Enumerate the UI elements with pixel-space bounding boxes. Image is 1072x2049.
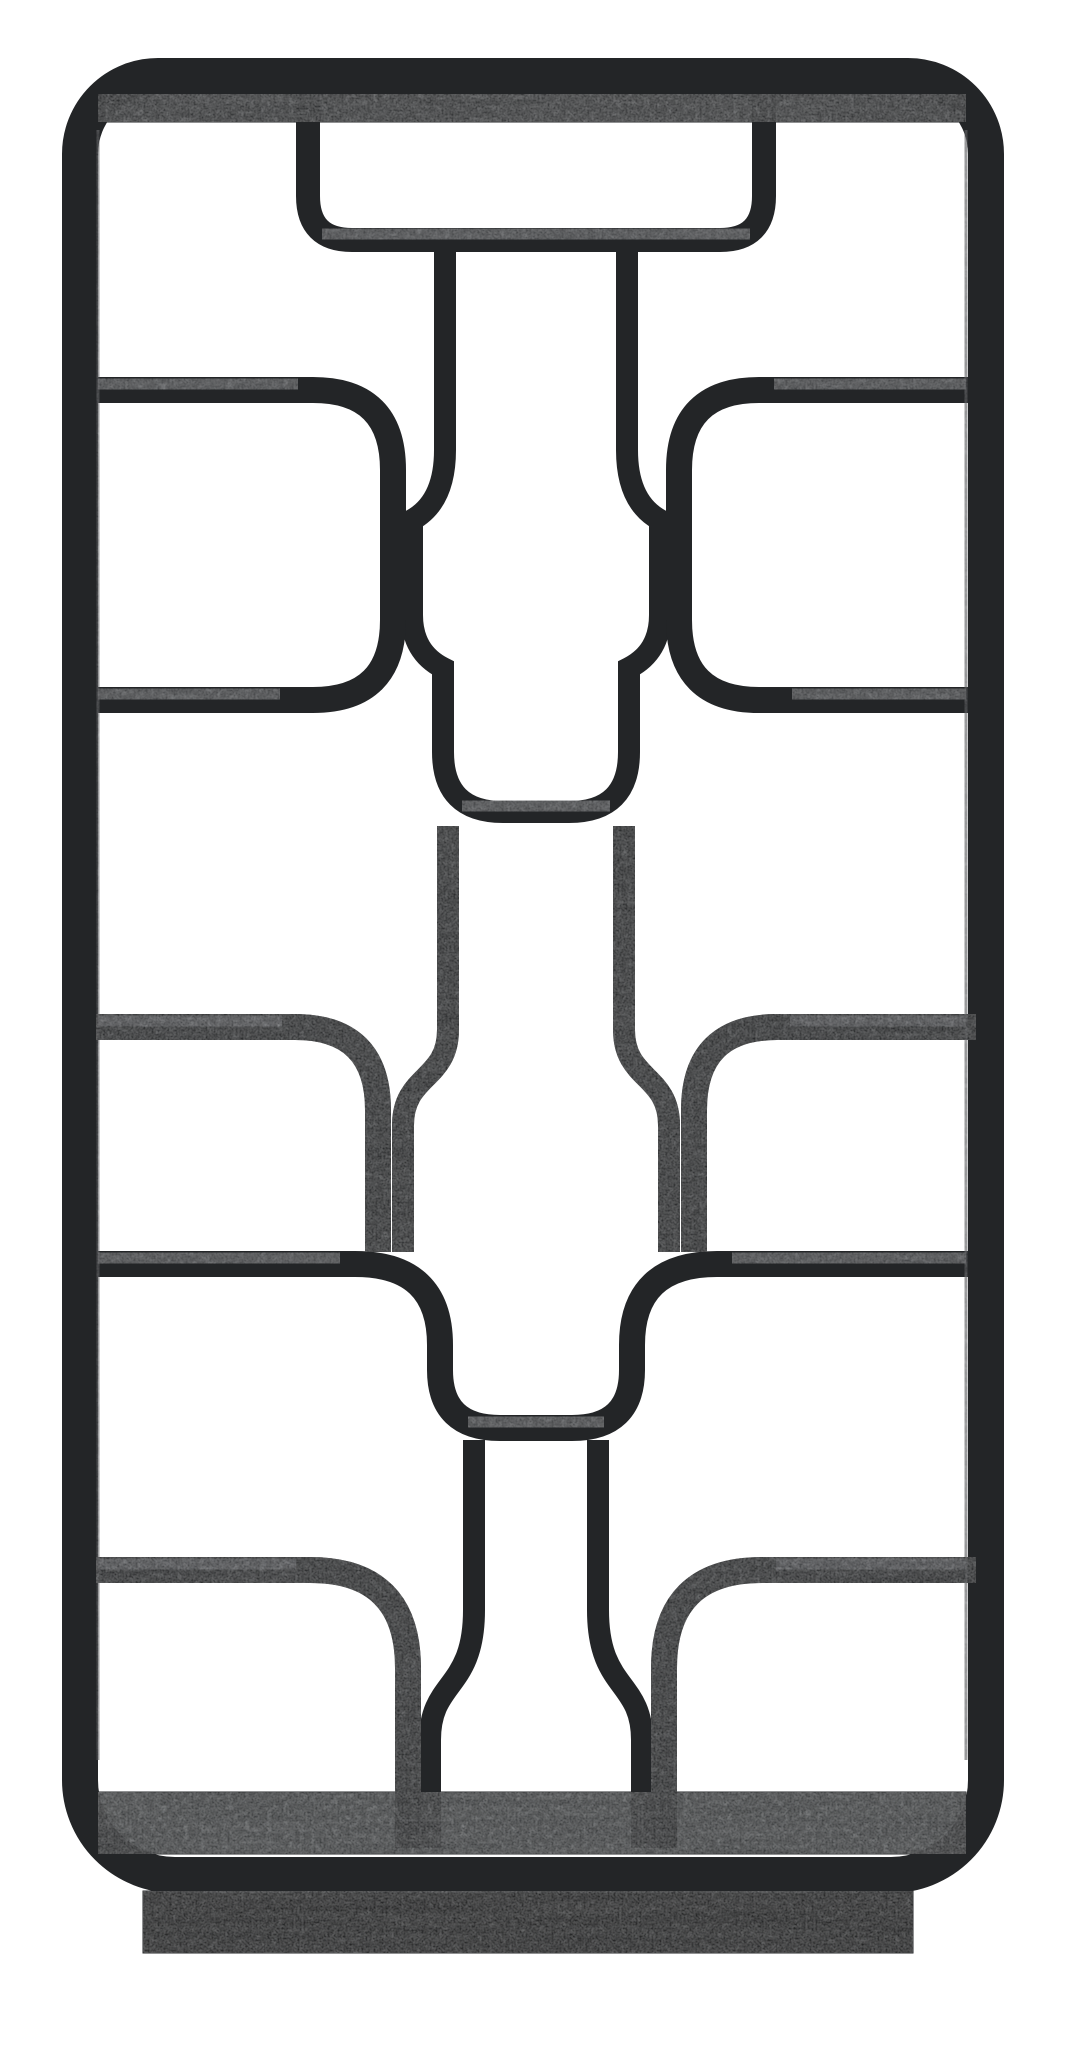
texture-speckle-dark [0, 0, 1072, 2048]
bookcase-illustration [0, 0, 1072, 2048]
wood-texture [0, 0, 1072, 2048]
product-photo: Tall rectangular black mango-wood etager… [0, 0, 1072, 2048]
